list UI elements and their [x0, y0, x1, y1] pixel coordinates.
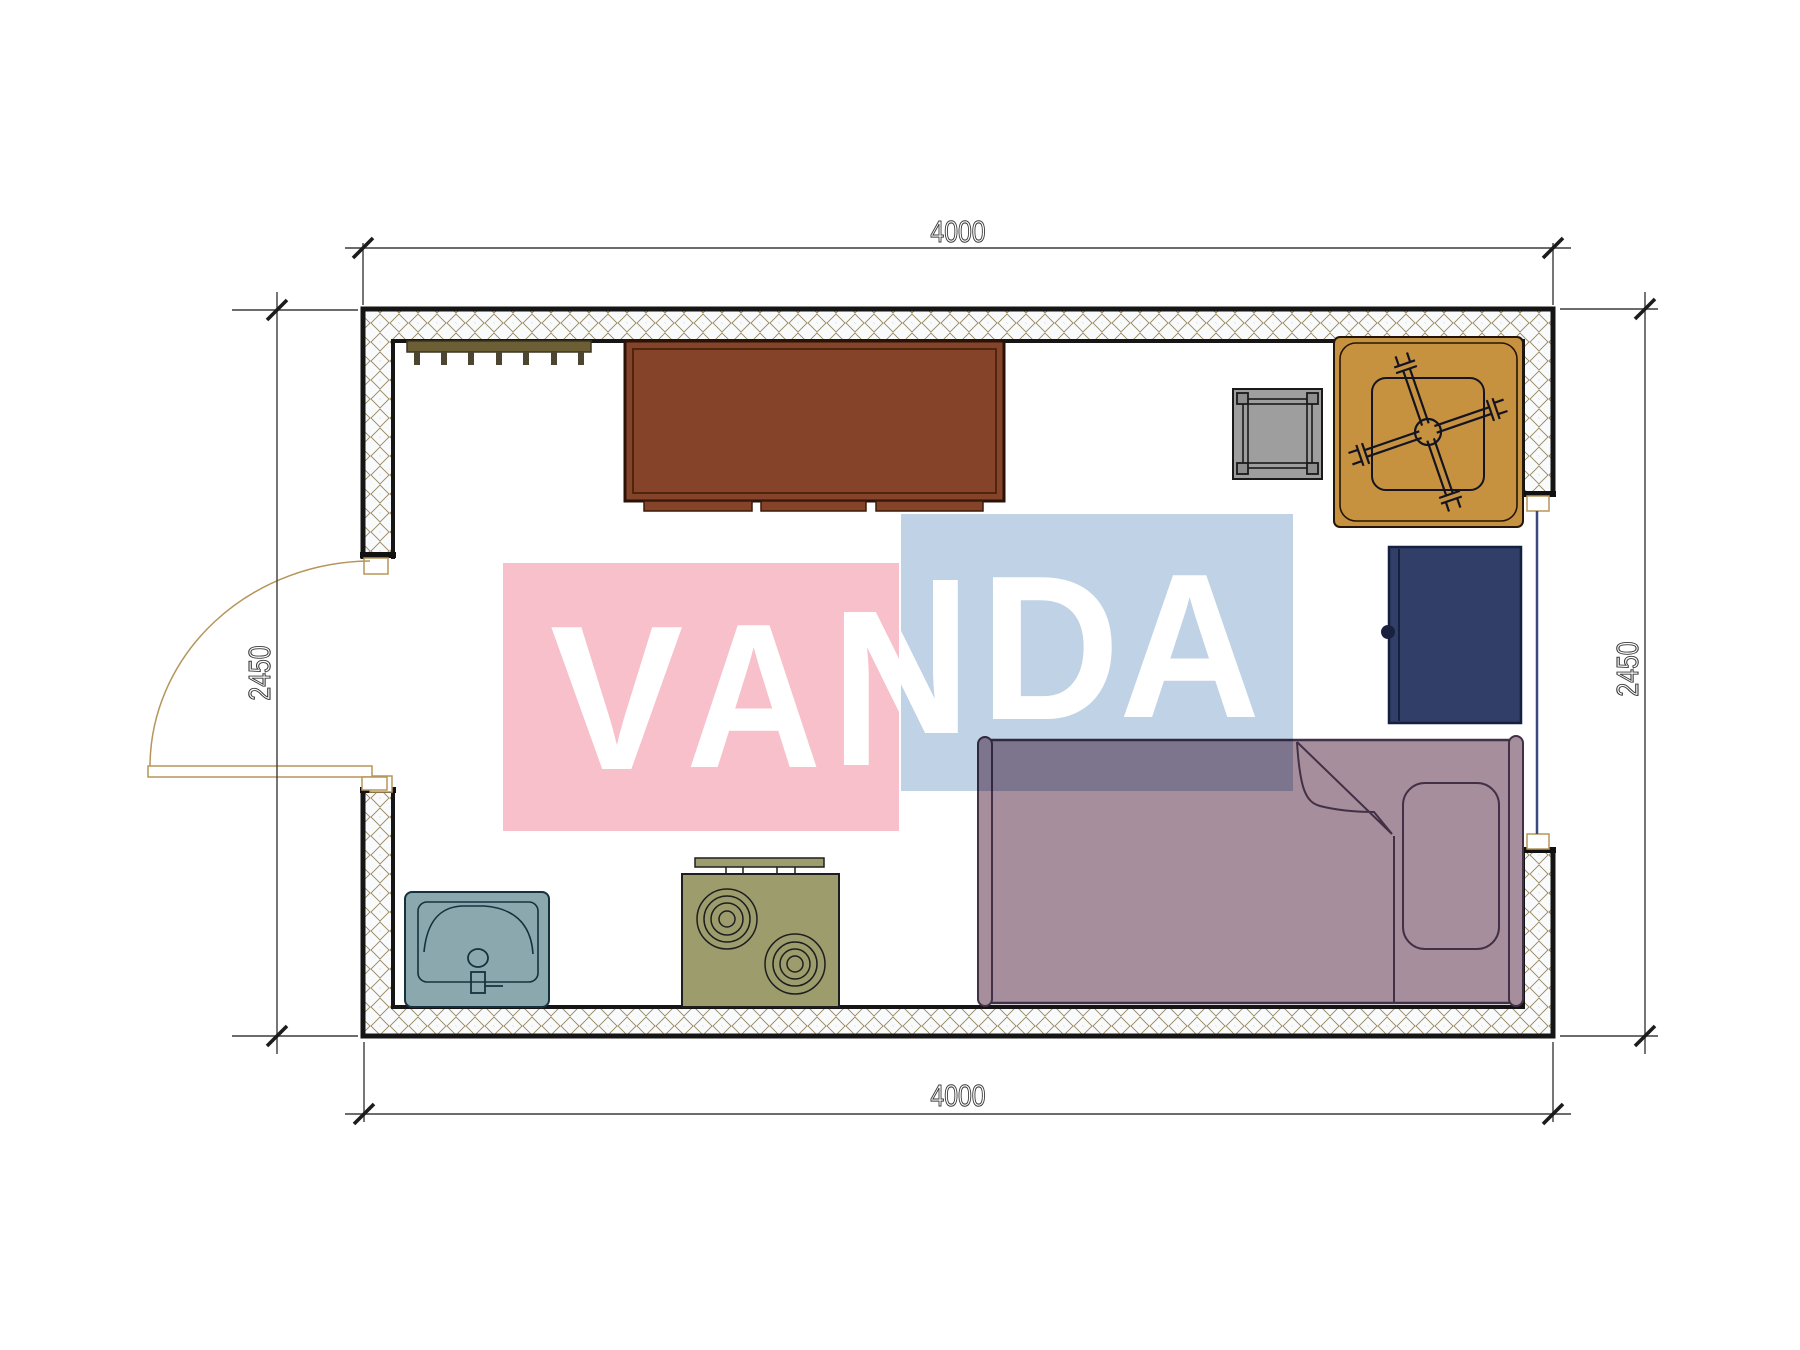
svg-text:V: V — [550, 583, 683, 813]
svg-text:4000: 4000 — [930, 214, 985, 248]
svg-text:A: A — [1119, 530, 1260, 761]
svg-text:A: A — [686, 581, 821, 811]
svg-text:2450: 2450 — [1610, 641, 1644, 696]
svg-text:D: D — [980, 534, 1120, 764]
svg-text:2450: 2450 — [242, 645, 276, 700]
svg-text:4000: 4000 — [930, 1078, 985, 1112]
